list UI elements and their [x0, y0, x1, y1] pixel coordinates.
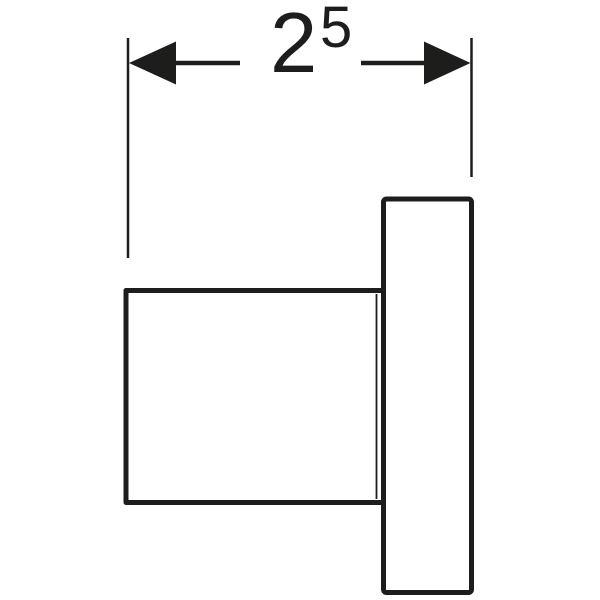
dimension-value-superscript: 5 — [320, 0, 352, 60]
dimension-arrow-left-icon — [129, 42, 240, 85]
technical-drawing-canvas: 2 5 — [0, 0, 600, 600]
arrowhead-left-icon — [129, 42, 176, 85]
dimension-value: 2 — [270, 0, 317, 91]
product-body-outline — [126, 291, 383, 503]
dimension-arrow-right-icon — [361, 42, 471, 85]
dimension-drawing-svg: 2 5 — [0, 0, 600, 600]
flange-plate-outline — [384, 199, 472, 593]
arrowhead-right-icon — [424, 42, 471, 85]
